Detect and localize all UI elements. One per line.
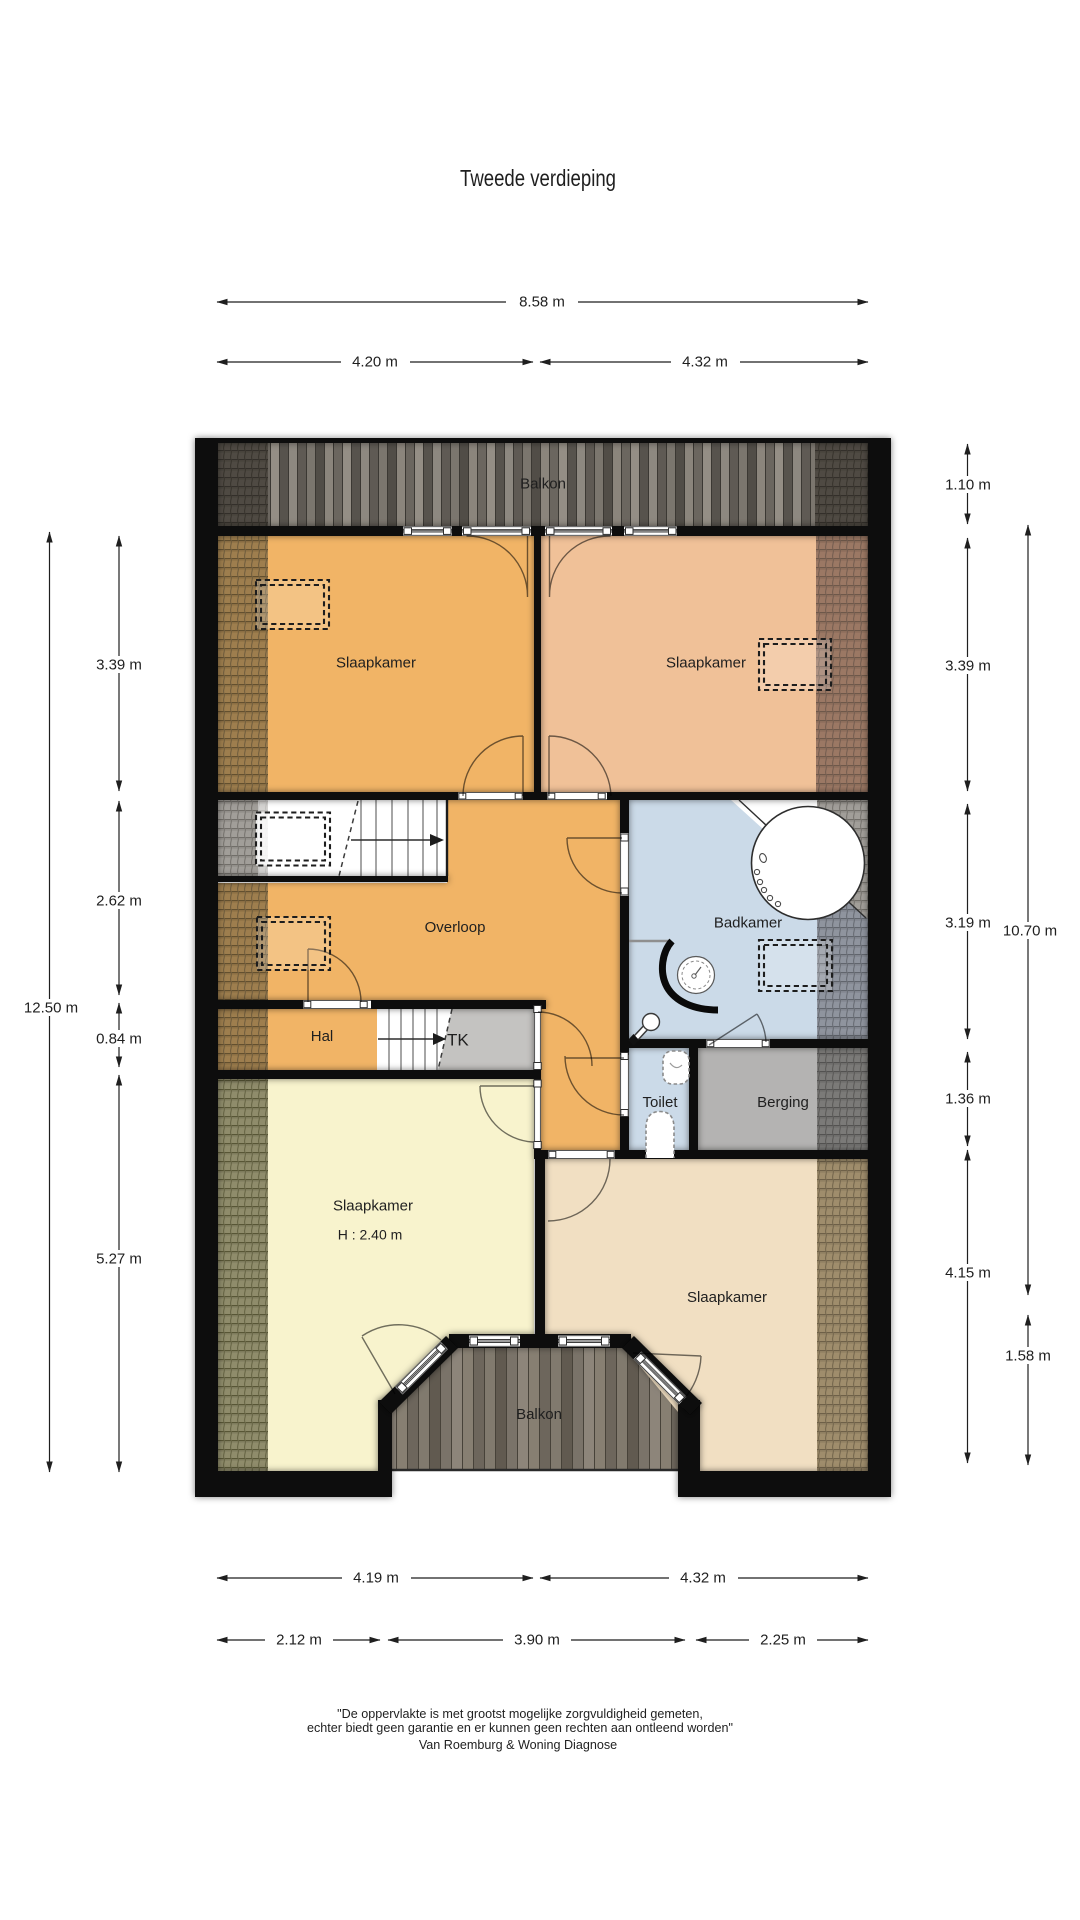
svg-text:TK: TK bbox=[447, 1031, 469, 1050]
svg-text:echter biedt geen garantie en: echter biedt geen garantie en er kunnen … bbox=[307, 1721, 733, 1735]
svg-text:Balkon: Balkon bbox=[520, 476, 566, 493]
svg-text:8.58 m: 8.58 m bbox=[519, 294, 565, 311]
svg-text:0.84 m: 0.84 m bbox=[96, 1031, 142, 1048]
svg-text:1.10 m: 1.10 m bbox=[945, 477, 991, 494]
svg-text:3.19 m: 3.19 m bbox=[945, 915, 991, 932]
svg-text:H : 2.40 m: H : 2.40 m bbox=[338, 1227, 403, 1243]
svg-text:Van Roemburg & Woning Diagnose: Van Roemburg & Woning Diagnose bbox=[419, 1738, 617, 1752]
svg-text:4.20 m: 4.20 m bbox=[352, 354, 398, 371]
svg-text:3.90 m: 3.90 m bbox=[514, 1632, 560, 1649]
svg-text:3.39 m: 3.39 m bbox=[96, 657, 142, 674]
svg-text:Balkon: Balkon bbox=[516, 1406, 562, 1423]
svg-text:4.32 m: 4.32 m bbox=[680, 1570, 726, 1587]
svg-text:1.58 m: 1.58 m bbox=[1005, 1348, 1051, 1365]
svg-text:2.62 m: 2.62 m bbox=[96, 893, 142, 910]
svg-text:Hal: Hal bbox=[311, 1028, 334, 1045]
svg-text:Berging: Berging bbox=[757, 1094, 809, 1111]
svg-text:Slaapkamer: Slaapkamer bbox=[666, 655, 746, 672]
svg-text:Overloop: Overloop bbox=[425, 919, 486, 936]
svg-text:Badkamer: Badkamer bbox=[714, 915, 782, 932]
svg-text:"De oppervlakte is met grootst: "De oppervlakte is met grootst mogelijke… bbox=[337, 1707, 703, 1721]
svg-text:Slaapkamer: Slaapkamer bbox=[336, 655, 416, 672]
svg-text:Tweede verdieping: Tweede verdieping bbox=[460, 165, 616, 191]
svg-text:4.32 m: 4.32 m bbox=[682, 354, 728, 371]
svg-text:1.36 m: 1.36 m bbox=[945, 1091, 991, 1108]
svg-text:4.19 m: 4.19 m bbox=[353, 1570, 399, 1587]
svg-text:2.12 m: 2.12 m bbox=[276, 1632, 322, 1649]
svg-text:2.25 m: 2.25 m bbox=[760, 1632, 806, 1649]
svg-text:12.50 m: 12.50 m bbox=[24, 1000, 78, 1017]
svg-text:4.15 m: 4.15 m bbox=[945, 1265, 991, 1282]
svg-text:10.70 m: 10.70 m bbox=[1003, 923, 1057, 940]
svg-text:Slaapkamer: Slaapkamer bbox=[687, 1289, 767, 1306]
svg-text:3.39 m: 3.39 m bbox=[945, 658, 991, 675]
svg-text:Toilet: Toilet bbox=[642, 1094, 678, 1111]
svg-text:Slaapkamer: Slaapkamer bbox=[333, 1198, 413, 1215]
svg-text:5.27 m: 5.27 m bbox=[96, 1251, 142, 1268]
